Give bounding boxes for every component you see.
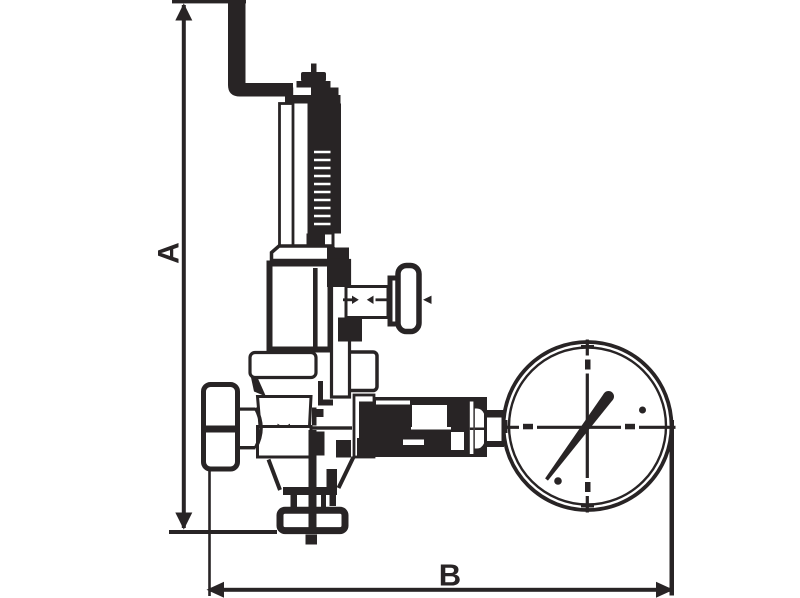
svg-text:B: B (439, 558, 461, 593)
svg-text:A: A (152, 242, 185, 264)
